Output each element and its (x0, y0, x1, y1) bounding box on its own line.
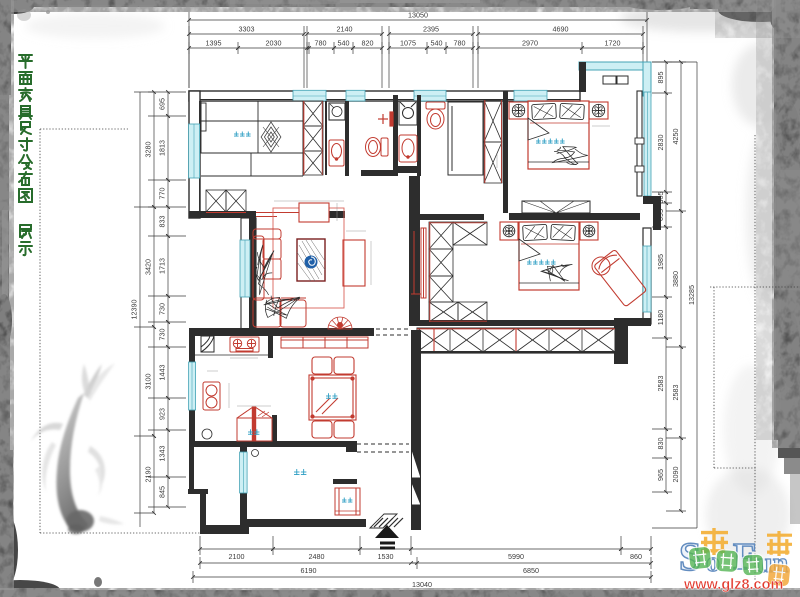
svg-text:3280: 3280 (144, 142, 153, 158)
svg-text:860: 860 (630, 552, 642, 561)
svg-text:2395: 2395 (423, 25, 439, 34)
svg-text:3100: 3100 (144, 374, 153, 390)
svg-text:12390: 12390 (130, 300, 139, 320)
svg-text:6190: 6190 (301, 566, 317, 575)
svg-text:3880: 3880 (671, 271, 680, 287)
svg-text:6850: 6850 (523, 566, 539, 575)
svg-text:1443: 1443 (158, 365, 167, 381)
svg-text:13285: 13285 (687, 285, 696, 305)
svg-text:www.glz8.com: www.glz8.com (683, 577, 783, 593)
svg-text:2583: 2583 (656, 376, 665, 392)
svg-text:2100: 2100 (229, 552, 245, 561)
svg-text:2090: 2090 (671, 467, 680, 483)
svg-text:4690: 4690 (553, 25, 569, 34)
svg-text:1813: 1813 (158, 140, 167, 156)
svg-text:5990: 5990 (508, 552, 524, 561)
svg-text:2030: 2030 (266, 39, 282, 48)
svg-text:1395: 1395 (206, 39, 222, 48)
svg-text:3303: 3303 (239, 25, 255, 34)
svg-text:1530: 1530 (378, 552, 394, 561)
svg-text:780: 780 (315, 39, 327, 48)
svg-text:830: 830 (656, 438, 665, 450)
svg-text:2190: 2190 (144, 467, 153, 483)
svg-text:770: 770 (158, 188, 167, 200)
svg-text:2970: 2970 (522, 39, 538, 48)
svg-text:730: 730 (158, 329, 167, 341)
svg-text:1180: 1180 (656, 310, 665, 325)
svg-text:2480: 2480 (309, 552, 325, 561)
svg-text:2583: 2583 (671, 385, 680, 401)
svg-text:2140: 2140 (337, 25, 353, 34)
svg-text:895: 895 (656, 72, 665, 84)
svg-text:13050: 13050 (408, 11, 428, 20)
svg-text:1075: 1075 (400, 39, 416, 48)
svg-text:780: 780 (454, 39, 466, 48)
svg-text:845: 845 (158, 486, 167, 498)
svg-text:540: 540 (338, 39, 350, 48)
svg-text:3420: 3420 (144, 259, 153, 275)
svg-text:730: 730 (158, 303, 167, 315)
svg-text:1985: 1985 (656, 254, 665, 270)
svg-text:923: 923 (158, 408, 167, 420)
svg-text:4250: 4250 (671, 129, 680, 145)
svg-text:1713: 1713 (158, 258, 167, 274)
svg-text:820: 820 (362, 39, 374, 48)
svg-text:2830: 2830 (656, 135, 665, 151)
svg-text:965: 965 (656, 469, 665, 481)
svg-text:1720: 1720 (605, 39, 621, 48)
svg-text:695: 695 (158, 98, 167, 110)
svg-text:13040: 13040 (412, 580, 432, 589)
svg-text:833: 833 (158, 216, 167, 228)
svg-text:540: 540 (431, 39, 443, 48)
svg-text:1343: 1343 (158, 446, 167, 462)
